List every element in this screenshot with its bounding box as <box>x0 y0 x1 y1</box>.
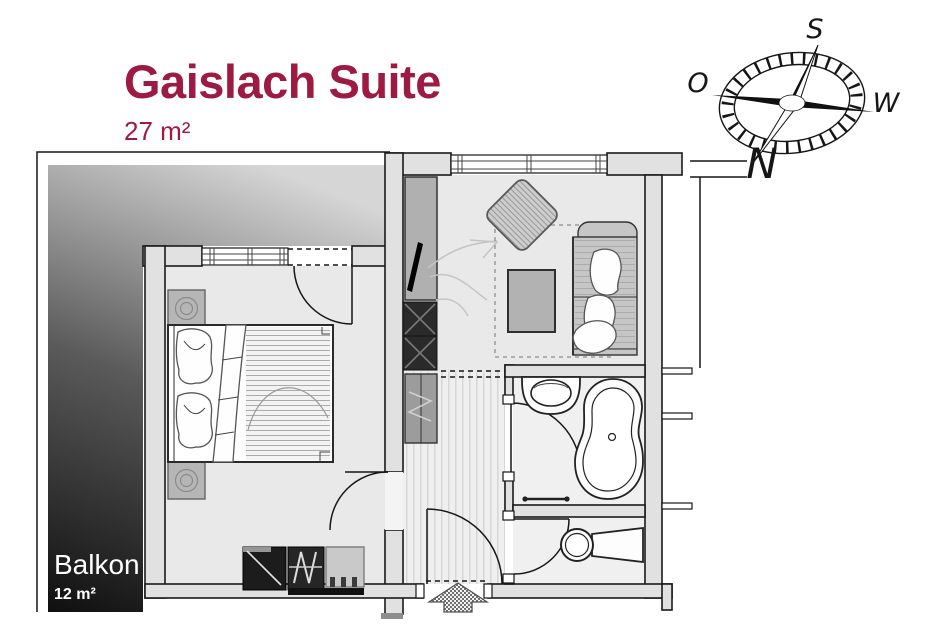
compass-north-label: N <box>746 139 777 188</box>
balcony-label: Balkon <box>54 549 140 580</box>
wall-bedroom-left <box>145 246 165 598</box>
wall-bedroom-east-lower <box>385 530 403 614</box>
duvet <box>246 327 330 460</box>
compass-rose: S W N O <box>687 14 900 188</box>
nightstand-bottom <box>168 462 205 499</box>
window-bedroom <box>202 248 288 265</box>
entrance-arrow <box>429 583 487 612</box>
wall-bath-wc-divider <box>513 505 645 517</box>
neighbor-walls <box>662 161 747 509</box>
balcony-area-label: 12 m² <box>54 586 96 603</box>
toilet <box>561 528 643 562</box>
double-bed <box>168 325 333 462</box>
wall-bottom-right-stub <box>662 584 672 610</box>
compass-east-label: O <box>687 68 708 99</box>
coffee-table <box>508 270 555 332</box>
pillow <box>176 393 212 448</box>
wall-bathroom-top <box>505 365 645 377</box>
floorplan-page: S W N O Gaislach Suite 27 m² Balkon 12 m… <box>0 0 940 632</box>
sofa <box>573 222 637 355</box>
hall-wardrobe <box>405 374 437 443</box>
compass-south-label: S <box>806 14 823 45</box>
wall-bedroom-east-upper <box>385 153 403 472</box>
sofa-pillow <box>590 249 621 295</box>
page-subtitle-area: 27 m² <box>124 116 191 146</box>
balcony-door-opening-dashes <box>288 249 352 265</box>
floorplan-canvas: S W N O Gaislach Suite 27 m² Balkon 12 m… <box>0 0 940 632</box>
washbasin-counter <box>522 377 580 414</box>
wall-top-east <box>607 153 682 175</box>
luggage-rack-bar <box>288 588 364 595</box>
wardrobe-x-cabinets <box>403 302 437 370</box>
bathtub <box>575 379 643 499</box>
tv-board <box>405 177 437 300</box>
wall-bottom-right <box>488 584 672 598</box>
compass-west-label: W <box>873 88 901 119</box>
pillow <box>176 329 212 384</box>
wall-right <box>645 175 662 598</box>
page-title: Gaislach Suite <box>124 55 441 108</box>
entry-pillar-shadow <box>381 613 403 619</box>
nightstand-top <box>168 290 205 327</box>
window-living-room <box>451 155 607 173</box>
